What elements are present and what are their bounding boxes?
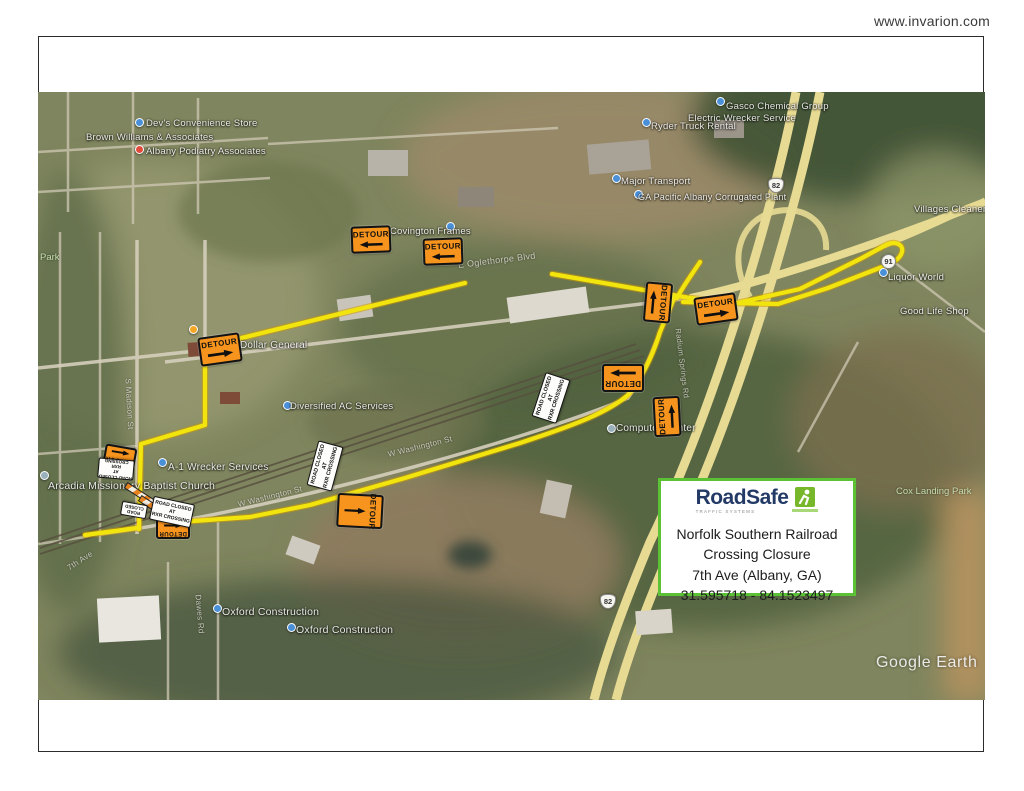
poi-label: Covington Frames — [390, 226, 471, 237]
poi-label: Liquor World — [888, 272, 944, 283]
poi-label: Albany Podiatry Associates — [146, 146, 266, 157]
road-closed-sign-crossing-north: ROAD CLOSEDATRXR CROSSING — [97, 457, 135, 480]
arrow-right-icon — [608, 369, 638, 379]
poi-pin — [40, 471, 49, 480]
detour-sign-down: DETOUR — [643, 281, 673, 323]
arrow-up-icon — [343, 505, 367, 516]
poi-pin — [642, 118, 651, 127]
info-line-railroad: Norfolk Southern Railroad — [676, 524, 837, 544]
roadsafe-figure-icon — [795, 487, 815, 507]
poi-pin — [607, 424, 616, 433]
detour-sign-left-1: DETOUR — [351, 225, 392, 253]
roadsafe-brand-subtext: TRAFFIC SYSTEMS — [696, 509, 756, 514]
info-line-closure: Crossing Closure — [676, 544, 837, 564]
poi-label: Oxford Construction — [296, 624, 393, 636]
satellite-map: E Oglethorpe Blvd W Washington St W Wash… — [38, 92, 985, 700]
info-line-coordinates: 31.595718 - 84.1523497 — [676, 585, 837, 605]
roadsafe-brand-text: RoadSafe — [696, 487, 789, 508]
poi-label: Oxford Construction — [222, 606, 319, 618]
arrow-right-icon — [666, 402, 676, 430]
poi-label: Major Transport — [621, 176, 691, 187]
poi-pin — [879, 268, 888, 277]
detour-sign-label: DETOUR — [368, 493, 378, 529]
roadsafe-logo: RoadSafe TRAFFIC SYSTEMS — [696, 487, 819, 514]
poi-pin — [189, 325, 198, 334]
poi-label: Gasco Chemical Group — [726, 101, 829, 112]
poi-pin — [716, 97, 725, 106]
satellite-basemap — [38, 92, 985, 700]
arrow-left-icon — [357, 239, 385, 249]
poi-label: Villages Cleaners — [914, 204, 985, 215]
poi-label: A-1 Wrecker Services — [168, 462, 269, 473]
detour-sign-right-interchange: DETOUR — [693, 292, 738, 326]
detour-sign-washington: DETOUR — [336, 493, 384, 529]
poi-pin — [213, 604, 222, 613]
poi-pin — [135, 118, 144, 127]
detour-sign-right-dollar-general: DETOUR — [197, 332, 243, 367]
poi-label: Brown Williams & Associates — [86, 132, 213, 143]
project-info-box: RoadSafe TRAFFIC SYSTEMS Norfolk Souther… — [658, 478, 856, 596]
poi-pin — [287, 623, 296, 632]
poi-label: Diversified AC Services — [290, 401, 393, 412]
poi-label: GA Pacific Albany Corrugated Plant — [638, 192, 786, 202]
detour-sign-label: DETOUR — [605, 380, 641, 388]
ga-91-shield: 91 — [881, 254, 896, 269]
poi-label: Dollar General — [240, 340, 307, 351]
roadsafe-tagline-bar — [792, 509, 818, 512]
detour-sign-up: DETOUR — [652, 396, 681, 437]
poi-pin — [158, 458, 167, 467]
poi-label: Good Life Shop — [900, 306, 969, 317]
info-line-location: 7th Ave (Albany, GA) — [676, 565, 837, 585]
detour-sign-label: DETOUR — [159, 530, 187, 536]
poi-pin — [612, 174, 621, 183]
poi-pin — [135, 145, 144, 154]
detour-sign-label: DETOUR — [425, 242, 461, 251]
google-earth-watermark: Google Earth — [876, 654, 977, 672]
detour-sign-upside-down: DETOUR — [602, 364, 644, 392]
roadsafe-logo-icon — [795, 487, 815, 507]
arrow-left-icon — [429, 251, 457, 261]
park-label: Park — [40, 252, 60, 263]
poi-label: Ryder Truck Rental — [651, 121, 736, 132]
invarion-url: www.invarion.com — [874, 13, 990, 29]
park-label: Cox Landing Park — [896, 486, 972, 497]
poi-label: Dev's Convenience Store — [146, 118, 258, 129]
detour-sign-label: DETOUR — [353, 230, 389, 239]
detour-sign-left-2: DETOUR — [423, 237, 464, 265]
